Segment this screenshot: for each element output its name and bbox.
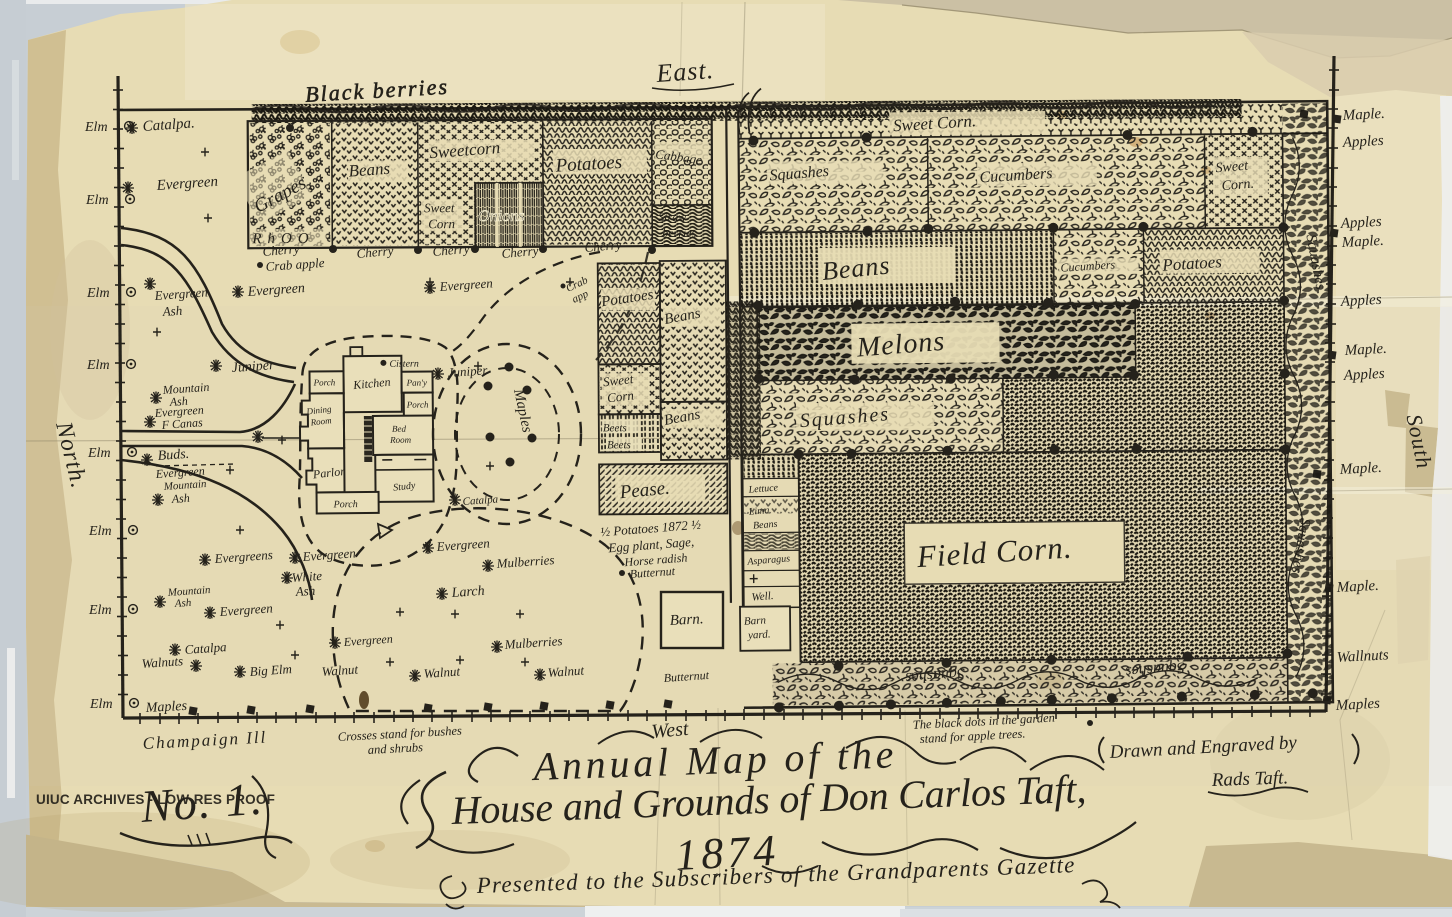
svg-text:Onions: Onions xyxy=(478,208,524,225)
svg-text:Elm: Elm xyxy=(89,697,113,712)
svg-text:Catalpa: Catalpa xyxy=(462,494,499,508)
svg-text:Ash: Ash xyxy=(170,491,190,506)
svg-text:F Canas: F Canas xyxy=(160,415,203,432)
svg-text:Elm: Elm xyxy=(87,446,111,461)
svg-text:Maple.: Maple. xyxy=(1335,578,1379,596)
svg-text:Straw: Straw xyxy=(658,210,686,224)
svg-text:Beets: Beets xyxy=(603,422,627,434)
svg-text:Porch: Porch xyxy=(333,499,358,510)
svg-text:Maple.: Maple. xyxy=(1338,460,1382,478)
svg-text:UIUC ARCHIVES - LOW-RES PROOF: UIUC ARCHIVES - LOW-RES PROOF xyxy=(36,792,275,807)
svg-text:yard.: yard. xyxy=(747,628,771,641)
svg-text:Elm: Elm xyxy=(84,120,108,135)
svg-text:Corn.: Corn. xyxy=(1221,177,1254,195)
svg-text:Beets: Beets xyxy=(607,439,631,451)
svg-text:Well.: Well. xyxy=(751,590,774,604)
svg-text:East.: East. xyxy=(654,55,715,88)
svg-text:Wallnuts: Wallnuts xyxy=(1336,647,1389,666)
svg-text:Beans: Beans xyxy=(348,159,391,181)
svg-text:Sweet: Sweet xyxy=(424,200,455,215)
svg-text:Bed: Bed xyxy=(392,424,407,434)
svg-text:berries: berries xyxy=(662,226,696,240)
svg-text:Potatoes: Potatoes xyxy=(1161,252,1223,275)
svg-text:Big Elm: Big Elm xyxy=(249,661,292,679)
svg-text:Larch: Larch xyxy=(450,584,485,601)
svg-text:Maple.: Maple. xyxy=(1340,233,1384,251)
svg-text:Porch: Porch xyxy=(406,399,429,409)
svg-text:Ash: Ash xyxy=(161,303,182,319)
svg-text:Elm: Elm xyxy=(88,524,112,539)
svg-text:Maple.: Maple. xyxy=(1341,106,1385,124)
svg-text:Walnuts: Walnuts xyxy=(141,653,183,671)
svg-text:Corn: Corn xyxy=(606,387,634,405)
svg-text:Apples: Apples xyxy=(1341,133,1384,151)
svg-text:Elm: Elm xyxy=(88,603,112,618)
svg-text:Lima: Lima xyxy=(747,505,769,518)
svg-text:Cistern: Cistern xyxy=(389,359,419,370)
svg-text:Barn: Barn xyxy=(744,614,767,627)
svg-text:Porch: Porch xyxy=(313,377,336,387)
svg-text:Apples: Apples xyxy=(1339,214,1382,232)
svg-text:Walnut: Walnut xyxy=(423,663,461,681)
svg-text:Potatoes: Potatoes xyxy=(554,152,623,177)
svg-text:Buds.: Buds. xyxy=(157,447,189,464)
svg-text:Apples: Apples xyxy=(1339,292,1382,310)
svg-text:Apples: Apples xyxy=(1342,366,1385,384)
svg-text:Pan'y: Pan'y xyxy=(406,378,428,388)
svg-text:Barn.: Barn. xyxy=(669,611,704,629)
svg-text:Room: Room xyxy=(389,435,412,445)
svg-text:Corn: Corn xyxy=(428,216,455,231)
svg-text:Beans: Beans xyxy=(753,519,778,532)
svg-text:and shrubs: and shrubs xyxy=(367,740,423,757)
svg-text:Catalpa: Catalpa xyxy=(184,639,227,657)
svg-text:Sweet: Sweet xyxy=(1215,159,1250,177)
svg-text:Maple.: Maple. xyxy=(1343,341,1387,359)
svg-text:Ash: Ash xyxy=(173,597,192,610)
svg-text:Walnut: Walnut xyxy=(321,661,359,679)
svg-text:Walnut: Walnut xyxy=(547,662,585,680)
svg-text:Elm: Elm xyxy=(85,193,109,208)
svg-text:Maples: Maples xyxy=(1334,696,1380,714)
svg-text:Elm: Elm xyxy=(86,286,110,301)
svg-text:Elm: Elm xyxy=(86,358,110,373)
svg-text:Maples: Maples xyxy=(144,699,187,716)
